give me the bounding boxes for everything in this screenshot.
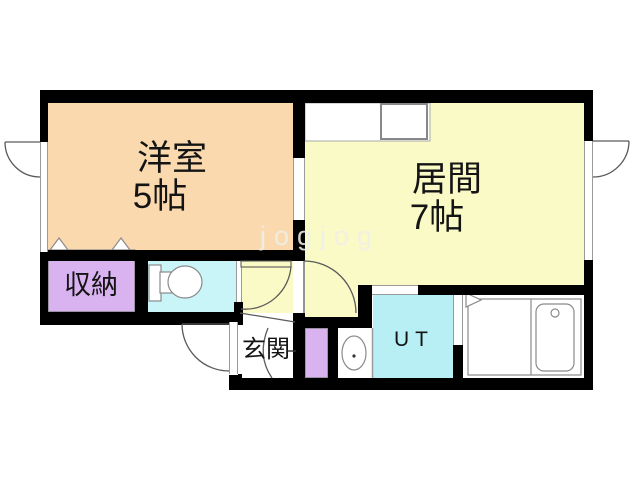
kitchen-area bbox=[305, 103, 430, 141]
wall-top bbox=[40, 90, 593, 103]
floorplan-canvas: 洋室 5帖 居間 7帖 収納 玄関 UT jogjog bbox=[0, 0, 640, 480]
label-bedroom-size: 5帖 bbox=[133, 177, 187, 216]
label-bedroom: 洋室 bbox=[137, 139, 207, 178]
label-entrance: 玄関 bbox=[242, 336, 290, 363]
toilet-tank-icon bbox=[149, 265, 161, 301]
wall-bottom-left bbox=[40, 312, 236, 325]
washbasin-icon bbox=[342, 336, 366, 370]
label-living: 居間 bbox=[412, 160, 482, 199]
opening-utility bbox=[372, 285, 418, 295]
label-utility: UT bbox=[394, 328, 434, 351]
window-opening-left bbox=[40, 142, 48, 252]
opening-entrance bbox=[229, 322, 238, 375]
window-opening-right bbox=[584, 141, 593, 260]
kitchen-sink bbox=[381, 104, 427, 139]
wall-under-bedroom bbox=[40, 250, 305, 261]
wall-center-upper bbox=[293, 103, 305, 158]
wall-entrance-left-top bbox=[229, 312, 242, 323]
door-leaf-toilet bbox=[241, 261, 291, 267]
washbasin-drain-icon bbox=[352, 354, 355, 357]
shoe-cabinet bbox=[305, 328, 328, 378]
toilet-bowl-icon bbox=[168, 266, 202, 298]
opening-bath bbox=[453, 295, 463, 345]
opening-hall-living bbox=[293, 261, 305, 313]
bathtub-drain-icon bbox=[551, 309, 559, 317]
opening-bedroom-living bbox=[293, 158, 305, 220]
wall-storage-toilet bbox=[135, 250, 148, 312]
wall-bottom bbox=[229, 378, 593, 390]
label-living-size: 7帖 bbox=[410, 198, 464, 237]
wall-utility-bath bbox=[453, 345, 463, 378]
watermark-text: jogjog bbox=[259, 221, 380, 251]
bathtub-outline bbox=[468, 299, 581, 375]
floorplan-svg: 洋室 5帖 居間 7帖 収納 玄関 UT jogjog bbox=[0, 0, 640, 480]
label-storage: 収納 bbox=[64, 270, 118, 300]
wall-cabinet-basin bbox=[328, 328, 338, 378]
